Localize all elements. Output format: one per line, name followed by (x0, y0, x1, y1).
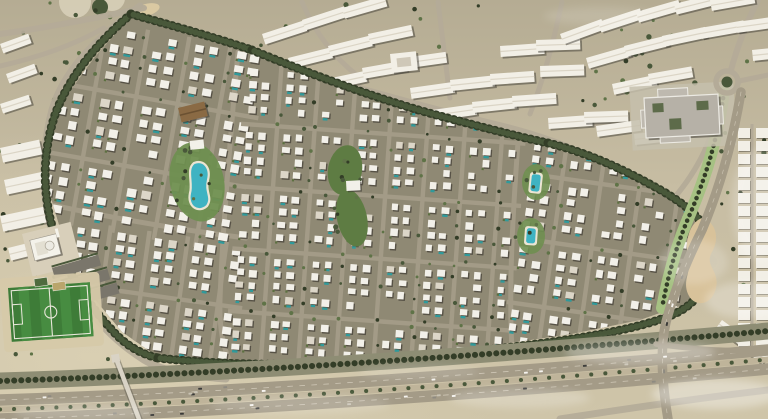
villa (323, 275, 331, 282)
villa (109, 44, 119, 53)
townhouse-row (540, 64, 586, 78)
villa (163, 278, 171, 285)
villa-pool (352, 246, 356, 249)
villa (93, 139, 102, 148)
garden (246, 75, 249, 78)
villa-pool (323, 118, 328, 121)
villa (280, 171, 288, 179)
villa (232, 330, 239, 338)
villa (502, 237, 510, 244)
villa-pool (242, 213, 247, 216)
garden (91, 147, 94, 150)
villa-pool (246, 150, 250, 153)
villa-pool (359, 147, 364, 150)
villa (563, 212, 571, 221)
villa (527, 285, 535, 293)
townhouse (756, 141, 768, 151)
villa (184, 308, 192, 317)
tree (355, 196, 359, 200)
tree (188, 150, 192, 154)
villa (94, 211, 103, 221)
villa (291, 197, 299, 204)
garden (503, 219, 505, 221)
tree (592, 103, 596, 107)
villa (188, 86, 197, 94)
bridge-landing (111, 354, 120, 363)
garden (344, 345, 346, 347)
community-pool (526, 228, 536, 244)
villa (91, 229, 100, 238)
villa (97, 197, 107, 206)
villa (310, 298, 317, 304)
villa (248, 106, 256, 114)
garden (552, 296, 554, 298)
villa (249, 270, 257, 278)
garden (195, 124, 198, 127)
villa (235, 293, 242, 301)
garden (456, 343, 458, 345)
villa (369, 153, 376, 159)
villa (393, 167, 400, 175)
villa (470, 147, 478, 155)
villa (113, 258, 121, 266)
villa (139, 205, 148, 213)
villa-pool (446, 153, 451, 156)
cloud (450, 388, 590, 408)
garden (318, 344, 320, 346)
villa-pool (320, 170, 324, 173)
villa (106, 142, 116, 152)
cloud (565, 340, 715, 364)
tree (3, 247, 7, 251)
villa (591, 294, 600, 302)
villa (272, 296, 279, 304)
villa (203, 271, 211, 279)
aerial-masterplan-render (0, 0, 768, 419)
villa (102, 170, 112, 179)
villa (467, 184, 475, 190)
villa (513, 285, 522, 293)
villa (426, 244, 432, 251)
villa (403, 205, 410, 212)
villa (160, 80, 170, 89)
villa (372, 102, 379, 108)
garden (154, 336, 156, 338)
cloud (544, 7, 656, 25)
villa (359, 114, 367, 121)
villa (77, 227, 85, 234)
villa (198, 309, 207, 317)
tree (30, 352, 33, 355)
villa (258, 132, 266, 140)
villa (607, 271, 616, 279)
villa (166, 209, 175, 217)
villa-pool (387, 273, 392, 276)
villa-pool (393, 186, 398, 189)
villa (148, 64, 157, 73)
tree (535, 223, 538, 226)
villa (584, 162, 592, 170)
villa (249, 94, 256, 102)
villa (105, 71, 115, 80)
villa (285, 97, 291, 104)
villa (299, 85, 306, 93)
villa-pool (442, 214, 448, 217)
villa (88, 168, 97, 176)
villa (148, 150, 158, 159)
tree (175, 198, 179, 202)
villa (245, 143, 252, 150)
villa (108, 129, 118, 139)
villa (361, 278, 369, 285)
villa (286, 284, 294, 290)
pavilion (190, 140, 205, 150)
villa-pool (249, 290, 253, 293)
villa (396, 142, 403, 149)
villa (470, 335, 478, 343)
garden (145, 309, 147, 311)
villa (128, 234, 136, 243)
garden (227, 101, 230, 104)
villa (151, 264, 159, 272)
villa-pool (261, 113, 265, 116)
garden (140, 114, 143, 117)
villa (617, 207, 626, 215)
villa-pool (324, 282, 329, 285)
tree (336, 213, 339, 216)
villa (193, 335, 201, 343)
garden (428, 213, 430, 215)
villa-pool (286, 104, 290, 107)
villa (120, 299, 130, 308)
villa (460, 309, 468, 316)
villa (143, 176, 153, 185)
villa (460, 297, 467, 305)
villa (241, 194, 249, 202)
villa (244, 156, 252, 164)
villa (444, 157, 451, 164)
villa (497, 299, 504, 306)
villa (307, 336, 315, 344)
villa (397, 292, 404, 300)
villa (308, 324, 315, 330)
villa (117, 232, 126, 241)
villa (464, 247, 472, 254)
villa (241, 206, 249, 213)
villa-pool (259, 152, 263, 155)
tree (52, 77, 57, 82)
villa (328, 211, 335, 217)
villa (61, 163, 70, 172)
car (663, 369, 665, 373)
garden (270, 329, 272, 331)
villa (218, 232, 229, 241)
villa (509, 323, 517, 331)
civic-roof (644, 94, 720, 138)
square-building (390, 51, 420, 75)
garden (167, 205, 170, 208)
villa (405, 179, 413, 185)
garden (282, 142, 284, 144)
villa (566, 199, 575, 206)
garden (275, 241, 277, 243)
villa (281, 334, 288, 341)
villa (299, 97, 306, 103)
villa-pool (250, 264, 255, 267)
townhouse (738, 271, 750, 281)
villa (349, 276, 356, 284)
villa-pool (483, 156, 488, 159)
tree (200, 174, 203, 177)
villa (120, 59, 129, 68)
tree (514, 235, 518, 239)
villa (556, 264, 565, 271)
villa (319, 162, 326, 170)
villa-pool (275, 267, 279, 270)
villa (406, 167, 414, 174)
villa (525, 208, 533, 217)
villa (282, 321, 290, 327)
villa-pool (292, 215, 296, 218)
villa (465, 210, 472, 216)
villa (230, 164, 240, 174)
villa (368, 178, 376, 185)
tree (259, 43, 263, 47)
villa (286, 272, 294, 279)
villa (255, 169, 262, 176)
car (43, 396, 47, 398)
villa (95, 126, 104, 136)
villa (577, 214, 585, 223)
garden (235, 59, 238, 62)
villa (243, 344, 250, 350)
villa (538, 209, 546, 217)
villa (204, 257, 213, 265)
tree (74, 13, 78, 17)
villa (257, 157, 264, 165)
villa (372, 115, 380, 122)
garden (104, 79, 107, 82)
villa (274, 259, 281, 267)
garden (238, 238, 240, 240)
villa (369, 165, 377, 171)
villa (392, 203, 398, 210)
villa (289, 222, 297, 229)
tree (726, 191, 729, 194)
garden (85, 189, 88, 192)
garden (179, 134, 182, 137)
villa (570, 161, 578, 170)
garden (369, 147, 371, 149)
villa (194, 129, 204, 138)
villa (178, 345, 187, 354)
villa (441, 207, 449, 214)
sport-court (34, 277, 48, 287)
garden (497, 293, 499, 295)
villa (176, 225, 185, 234)
villa (465, 234, 473, 242)
villa-pool (424, 301, 428, 304)
villa (333, 137, 340, 144)
villa (98, 112, 107, 120)
screenshot-root (0, 0, 768, 419)
villa (223, 121, 233, 131)
garden (234, 143, 237, 146)
tree (533, 171, 536, 174)
villa (252, 220, 260, 228)
villa (482, 160, 489, 168)
villa-pool (445, 165, 449, 168)
villa (636, 261, 645, 269)
villa (580, 188, 588, 197)
community-pool (530, 174, 541, 192)
villa (357, 339, 365, 347)
villa (293, 172, 301, 179)
villa (508, 150, 515, 157)
villa (286, 259, 294, 266)
villa (410, 117, 417, 124)
villa (392, 179, 400, 186)
villa (285, 297, 293, 305)
villa (403, 217, 409, 224)
villa (237, 268, 244, 275)
villa (260, 107, 267, 113)
villa (572, 253, 581, 261)
villa (152, 122, 162, 131)
villa (68, 121, 77, 131)
tree (594, 70, 598, 74)
villa-pool (300, 93, 305, 96)
villa (477, 234, 485, 240)
villa (555, 276, 563, 284)
tree (539, 169, 543, 173)
villa (645, 289, 654, 297)
courtyard (696, 101, 708, 111)
villa (425, 270, 432, 277)
villa (321, 136, 328, 143)
villa-pool (409, 149, 413, 152)
villa (399, 267, 407, 273)
villa (153, 342, 162, 351)
villa (363, 265, 371, 273)
villa (386, 291, 393, 297)
villa (433, 333, 441, 340)
villa (642, 303, 651, 310)
villa-pool (281, 203, 286, 206)
villa (549, 316, 558, 325)
garden (105, 150, 108, 153)
garden (272, 290, 274, 292)
villa (316, 199, 323, 205)
villa (166, 252, 175, 260)
villa (385, 278, 392, 286)
villa (435, 295, 442, 302)
villa (189, 71, 199, 80)
villa (394, 343, 401, 350)
villa (399, 280, 407, 286)
villa (465, 222, 473, 230)
villa-pool (286, 305, 291, 308)
villa (65, 135, 74, 145)
villa (251, 231, 259, 239)
villa (196, 322, 204, 330)
garden (617, 201, 619, 203)
villa-pool (287, 92, 292, 95)
villa-pool (506, 181, 511, 184)
villa (318, 349, 325, 356)
villa (494, 336, 501, 344)
tree (48, 1, 51, 4)
villa (127, 247, 135, 255)
townhouse (738, 141, 750, 151)
cloud (660, 240, 728, 284)
villa (271, 321, 279, 329)
villa (468, 172, 475, 179)
villa-pool (438, 277, 444, 280)
garden (446, 126, 448, 128)
garden (281, 153, 283, 155)
courtyard (396, 57, 411, 67)
garden (72, 101, 75, 104)
villa (523, 312, 532, 320)
villa (168, 39, 177, 47)
villa (321, 299, 329, 307)
villa (233, 318, 241, 326)
garden (242, 350, 244, 352)
villa (357, 327, 365, 333)
villa-pool (395, 349, 400, 352)
villa (548, 328, 556, 336)
villa (395, 330, 403, 338)
villa (345, 327, 352, 334)
villa (253, 206, 261, 213)
villa (446, 146, 454, 154)
villa (144, 315, 152, 323)
villa (282, 147, 290, 153)
villa (567, 279, 576, 286)
villa (438, 244, 446, 251)
villa (521, 324, 529, 331)
garden (294, 167, 296, 169)
villa (497, 312, 504, 319)
villa-pool (328, 232, 332, 235)
garden (469, 155, 471, 157)
villa (70, 108, 79, 116)
tree (731, 247, 736, 252)
villa (183, 320, 192, 328)
tree (63, 60, 67, 64)
villa (361, 289, 369, 295)
villa (649, 263, 657, 271)
villa (336, 99, 343, 105)
car (188, 393, 192, 395)
tree (437, 45, 441, 49)
villa (239, 231, 247, 238)
villa (202, 88, 212, 97)
villa (639, 236, 647, 245)
villa (226, 192, 235, 200)
villa-pool (235, 301, 239, 304)
villa (562, 317, 571, 325)
villa (281, 347, 287, 353)
villa (124, 273, 133, 282)
villa (115, 245, 124, 253)
villa (618, 194, 626, 202)
villa (55, 190, 64, 199)
roundabout-green (722, 77, 733, 88)
villa (294, 159, 302, 167)
car (693, 377, 697, 379)
